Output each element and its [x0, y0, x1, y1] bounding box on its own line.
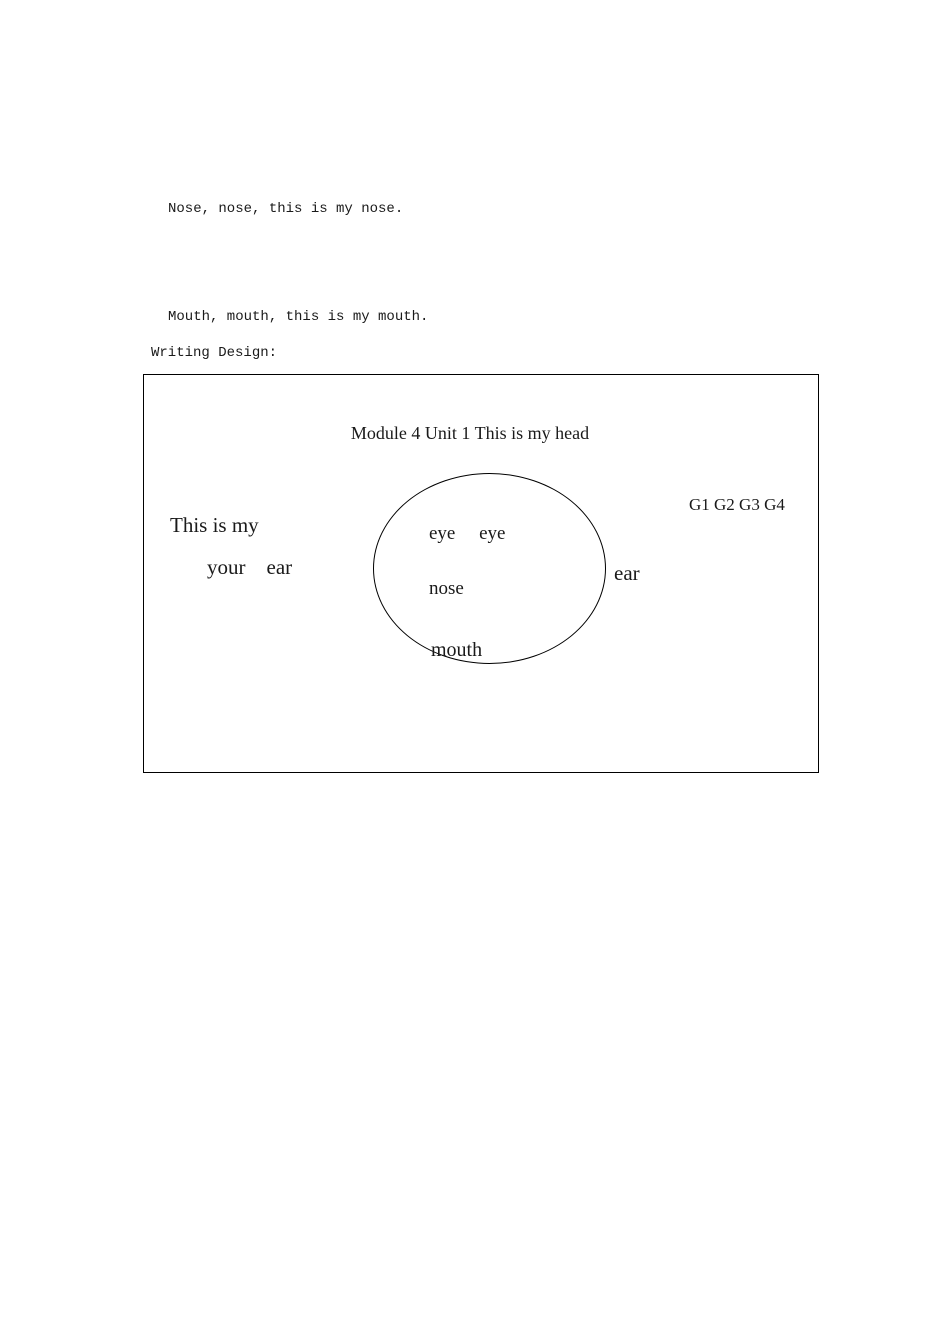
document-page: Nose, nose, this is my nose. Mouth, mout…: [0, 0, 950, 1344]
writing-design-board: Module 4 Unit 1 This is my head G1 G2 G3…: [143, 374, 819, 773]
writing-design-label: Writing Design:: [151, 345, 277, 361]
phrase-this-is-my: This is my: [170, 514, 259, 537]
chant-line-1: Nose, nose, this is my nose.: [168, 191, 622, 227]
group-labels: G1 G2 G3 G4: [689, 496, 785, 514]
face-mouth-label: mouth: [431, 639, 482, 661]
face-circle: [373, 473, 606, 664]
board-title: Module 4 Unit 1 This is my head: [133, 423, 807, 443]
face-nose-label: nose: [429, 578, 464, 599]
chant-line-2: Mouth, mouth, this is my mouth.: [168, 299, 622, 335]
phrase-your-ear: your ear: [207, 556, 292, 579]
right-ear-label: ear: [614, 562, 640, 585]
face-eyes-label: eye eye: [429, 523, 505, 544]
